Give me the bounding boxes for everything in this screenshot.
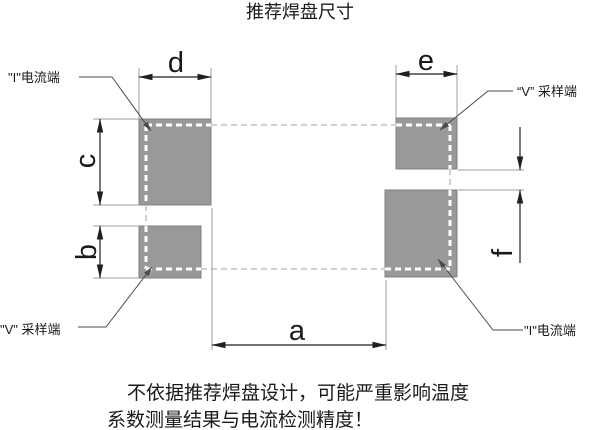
page-title: 推荐焊盘尺寸	[0, 2, 600, 22]
terminal-label-current-top-left: "I"电流端	[8, 70, 60, 86]
warning-text: 不依据推荐焊盘设计，可能严重影响温度 系数测量结果与电流检测精度！	[107, 380, 469, 430]
dimension-label-b: b	[70, 232, 104, 272]
dimension-label-a: a	[277, 314, 317, 348]
terminal-label-sense-bottom-left: "V" 采样端	[0, 322, 61, 338]
warning-line-2: 系数测量结果与电流检测精度！	[107, 407, 469, 430]
terminal-label-current-bottom-right: "I"电流端	[524, 323, 576, 339]
warning-line-1: 不依据推荐焊盘设计，可能严重影响温度	[107, 380, 469, 407]
pad-layout-diagram: 推荐焊盘尺寸 "I"电流端 “V” 采样端 "V" 采样端 "I"电流端 d e…	[0, 0, 600, 430]
dimension-label-e: e	[406, 44, 446, 78]
dimension-label-d: d	[156, 46, 196, 80]
diagram-canvas	[0, 0, 600, 430]
dimension-label-f: f	[486, 233, 520, 273]
pad-current-bottom-right	[385, 190, 457, 277]
dimension-label-c: c	[69, 141, 103, 181]
pad-current-top-left	[139, 119, 211, 205]
extension-lines	[93, 65, 524, 350]
terminal-label-sense-top-right: “V” 采样端	[517, 84, 577, 100]
